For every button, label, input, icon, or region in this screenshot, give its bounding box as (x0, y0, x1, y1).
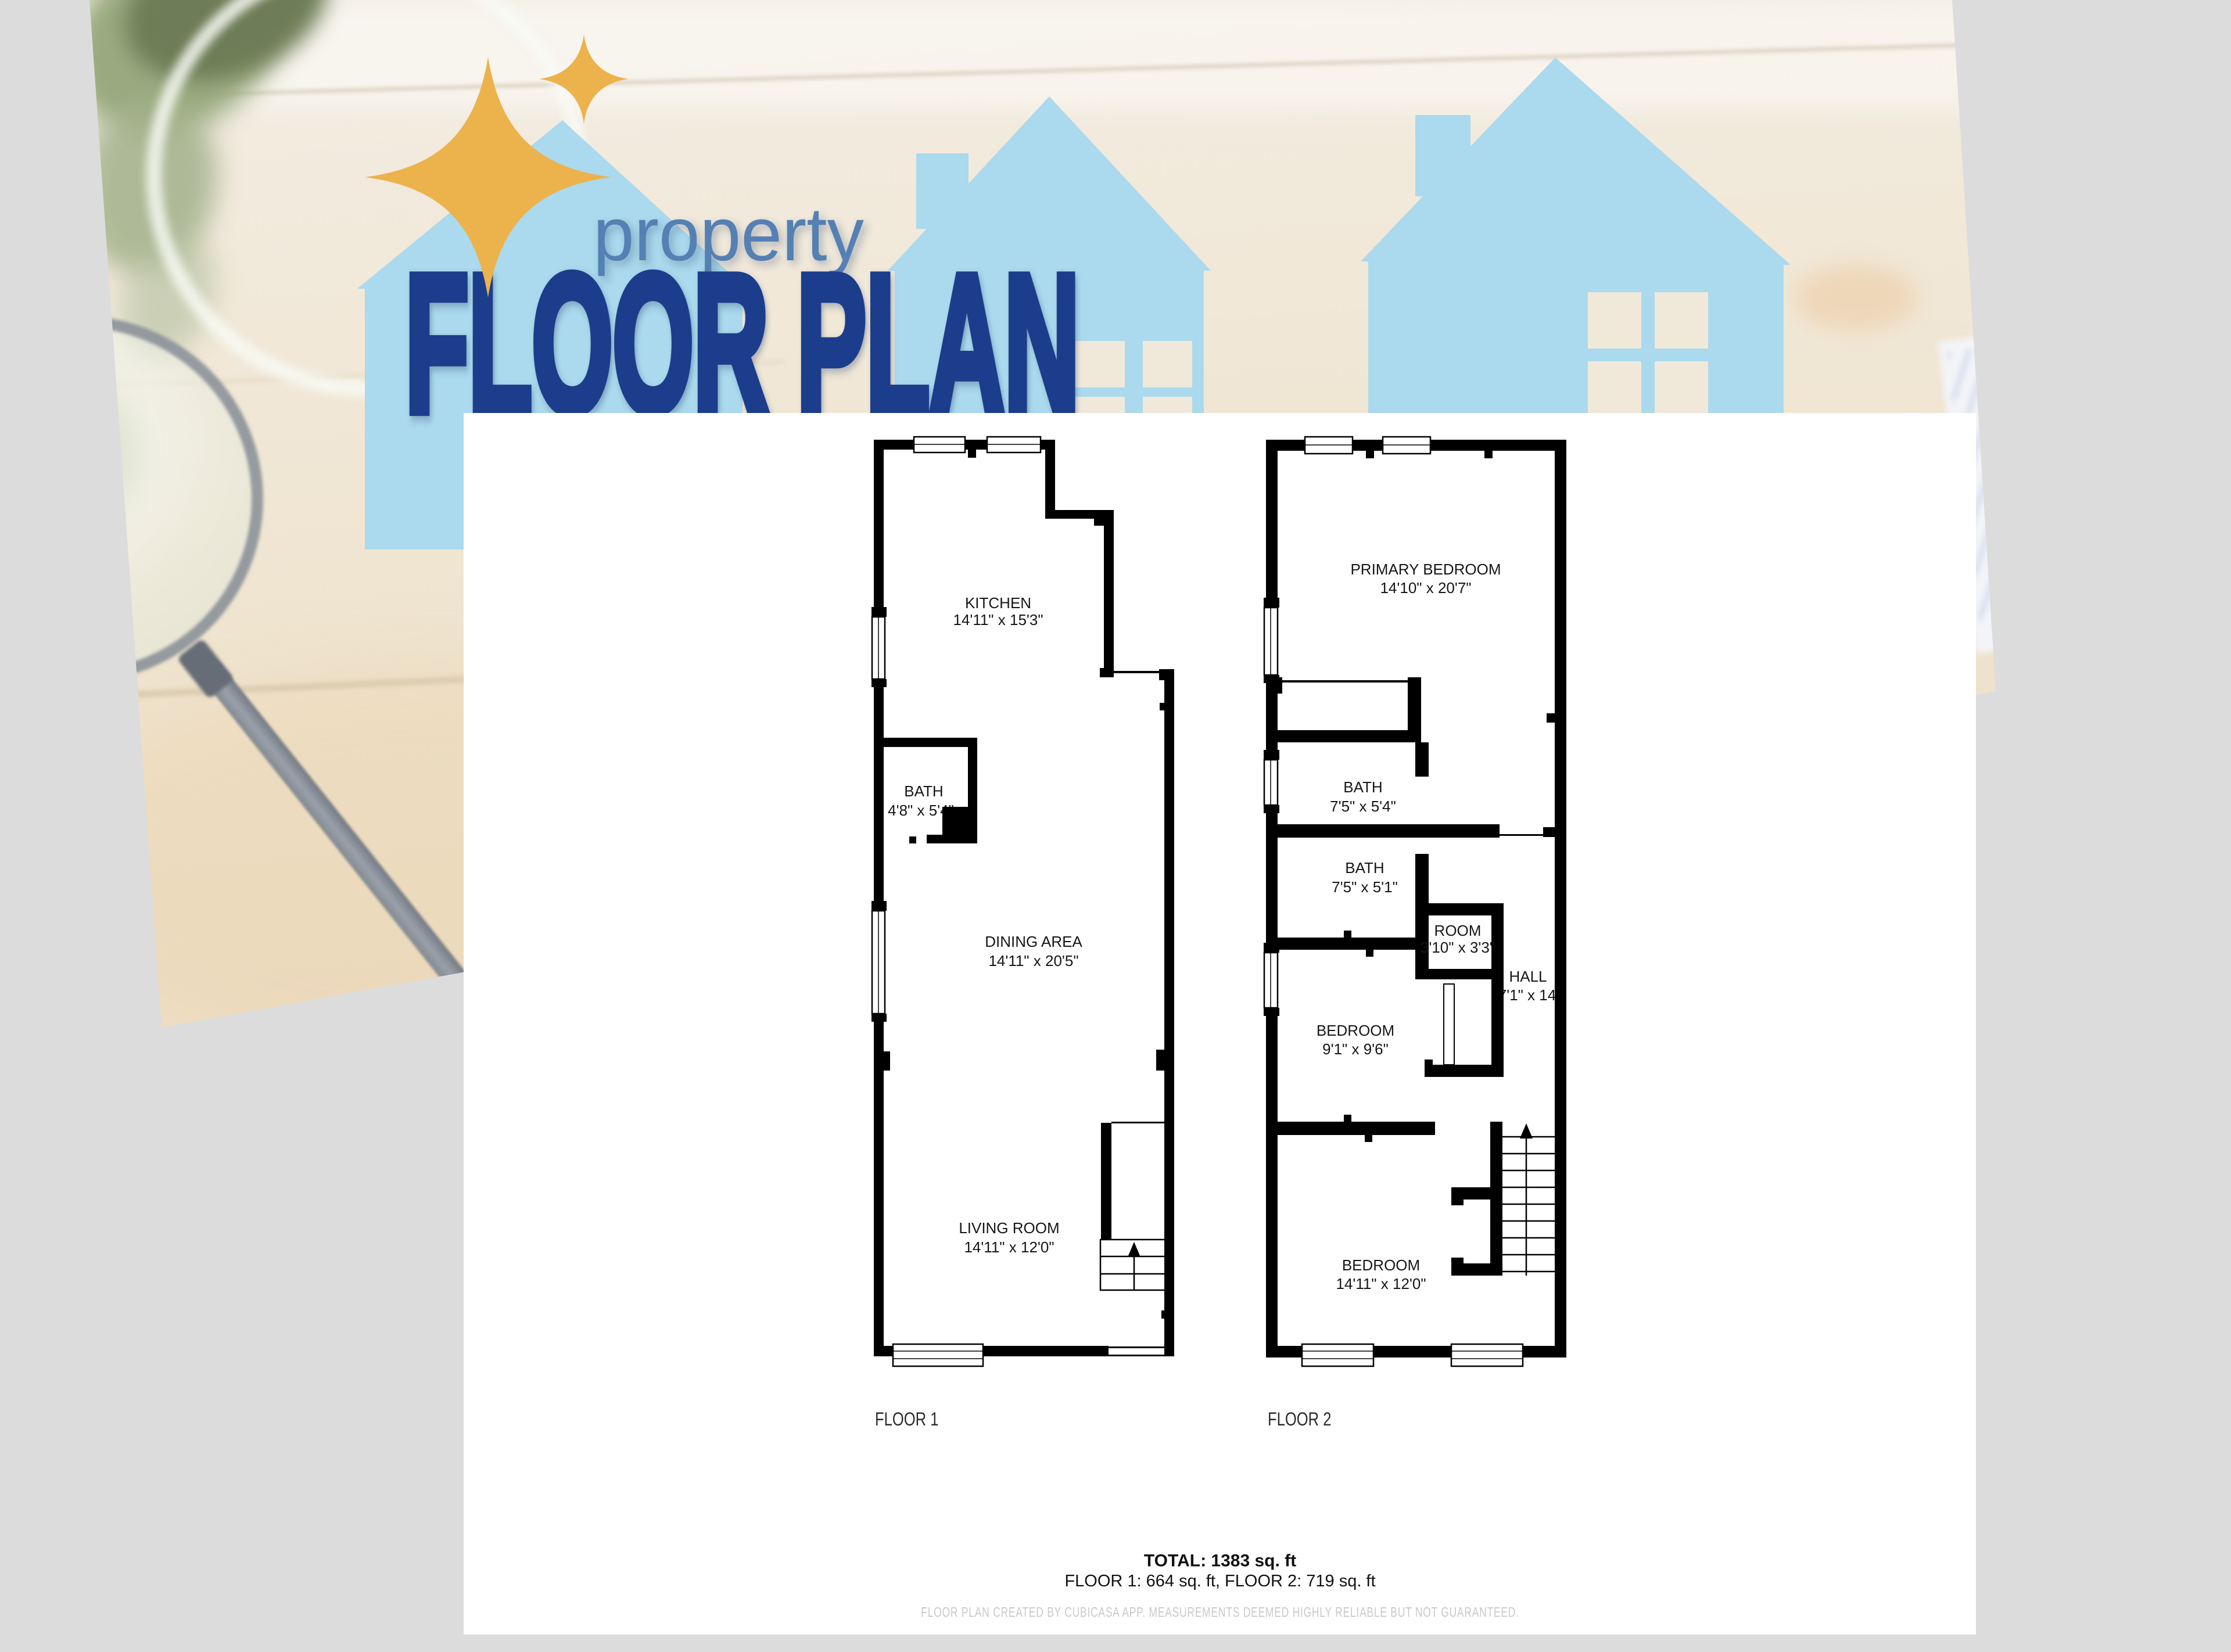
svg-text:KITCHEN: KITCHEN (965, 594, 1031, 612)
svg-text:LIVING ROOM: LIVING ROOM (959, 1219, 1059, 1237)
svg-text:14'10" x 20'7": 14'10" x 20'7" (1380, 579, 1471, 597)
svg-text:BATH: BATH (904, 782, 943, 800)
svg-text:3'10" x 3'3": 3'10" x 3'3" (1421, 939, 1495, 956)
svg-text:7'5" x 5'1": 7'5" x 5'1" (1332, 878, 1398, 896)
svg-text:14'11" x 15'3": 14'11" x 15'3" (953, 611, 1043, 629)
svg-text:BATH: BATH (1343, 778, 1382, 796)
svg-text:ROOM: ROOM (1434, 922, 1482, 939)
svg-text:9'1" x 9'6": 9'1" x 9'6" (1322, 1040, 1389, 1058)
svg-text:FLOOR 2: FLOOR 2 (1268, 1409, 1332, 1430)
svg-text:BEDROOM: BEDROOM (1317, 1022, 1394, 1039)
svg-text:7'5" x 5'4": 7'5" x 5'4" (1330, 798, 1396, 815)
svg-text:14'11" x 20'5": 14'11" x 20'5" (988, 952, 1078, 969)
svg-text:14'11" x 12'0": 14'11" x 12'0" (964, 1238, 1054, 1256)
svg-text:FLOOR 1: FLOOR 1 (875, 1409, 939, 1430)
svg-text:DINING AREA: DINING AREA (985, 933, 1082, 950)
svg-text:PRIMARY BEDROOM: PRIMARY BEDROOM (1350, 561, 1501, 578)
svg-text:14'11" x 12'0": 14'11" x 12'0" (1336, 1275, 1426, 1292)
svg-text:BEDROOM: BEDROOM (1342, 1256, 1420, 1274)
svg-text:FLOOR 1: 664 sq. ft, FLOOR 2:: FLOOR 1: 664 sq. ft, FLOOR 2: 719 sq. ft (1064, 1572, 1375, 1590)
svg-text:TOTAL: 1383 sq. ft: TOTAL: 1383 sq. ft (1144, 1552, 1296, 1571)
svg-text:BATH: BATH (1345, 859, 1384, 877)
svg-text:HALL: HALL (1509, 968, 1547, 985)
svg-text:FLOOR PLAN CREATED BY CUBICASA: FLOOR PLAN CREATED BY CUBICASA APP. MEAS… (921, 1605, 1519, 1620)
